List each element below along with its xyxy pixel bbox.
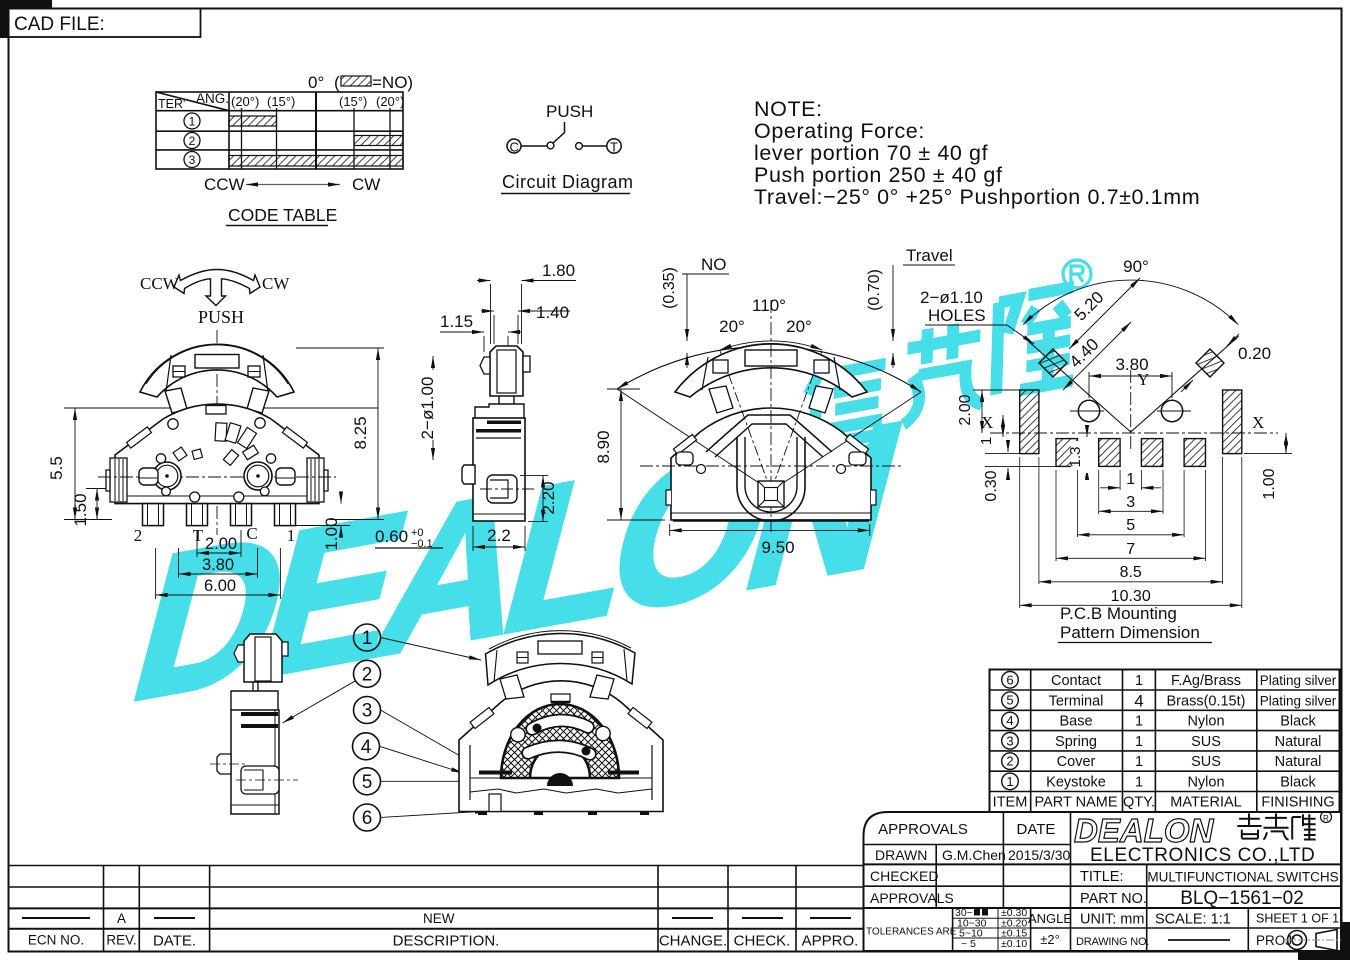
svg-text:2−ø1.00: 2−ø1.00 <box>418 377 437 440</box>
svg-text:1.3: 1.3 <box>1067 447 1084 468</box>
svg-text:Pattern Dimension: Pattern Dimension <box>1060 623 1200 642</box>
svg-text:1: 1 <box>1135 673 1143 689</box>
svg-text:1: 1 <box>287 526 296 545</box>
svg-text:Nylon: Nylon <box>1187 775 1224 791</box>
svg-text:Black: Black <box>1280 714 1316 730</box>
svg-text:P.C.B Mounting: P.C.B Mounting <box>1060 604 1177 623</box>
svg-text:Nylon: Nylon <box>1187 714 1224 730</box>
svg-text:ELECTRONICS CO.,LTD: ELECTRONICS CO.,LTD <box>1090 845 1315 866</box>
svg-text:8.5: 8.5 <box>1120 564 1142 581</box>
svg-text:PUSH: PUSH <box>198 307 244 327</box>
svg-text:Circuit Diagram: Circuit Diagram <box>502 172 634 192</box>
svg-text:4: 4 <box>1134 691 1143 710</box>
svg-text:CHECK.: CHECK. <box>734 933 791 950</box>
svg-text:1: 1 <box>978 437 995 445</box>
svg-text:SUS: SUS <box>1191 754 1221 770</box>
svg-text:T: T <box>193 526 204 545</box>
svg-text:1.40: 1.40 <box>536 303 569 322</box>
svg-text:BLQ−1561−02: BLQ−1561−02 <box>1180 888 1304 909</box>
svg-text:2.00: 2.00 <box>957 394 974 425</box>
svg-text:8.90: 8.90 <box>594 430 613 463</box>
svg-text:2: 2 <box>134 526 143 545</box>
svg-text:2: 2 <box>362 664 373 685</box>
svg-text:Plating silver: Plating silver <box>1260 673 1337 688</box>
svg-text:CODE TABLE: CODE TABLE <box>228 205 337 225</box>
svg-text:±2°: ±2° <box>1040 932 1060 947</box>
svg-text:Black: Black <box>1280 775 1316 791</box>
svg-text:2015/3/30: 2015/3/30 <box>1008 847 1070 863</box>
svg-text:(0.35): (0.35) <box>661 267 678 309</box>
svg-text:DRAWN: DRAWN <box>875 847 927 863</box>
svg-text:3.80: 3.80 <box>202 556 234 574</box>
svg-text:1.80: 1.80 <box>542 261 575 280</box>
svg-text:1.00: 1.00 <box>1261 468 1278 499</box>
svg-text:2.20: 2.20 <box>539 481 558 514</box>
svg-text:3: 3 <box>189 153 196 167</box>
svg-text:110°: 110° <box>752 296 786 315</box>
svg-text:CAD FILE:: CAD FILE: <box>14 14 105 35</box>
svg-text:TITLE:: TITLE: <box>1080 869 1124 885</box>
svg-text:10.30: 10.30 <box>1111 588 1151 605</box>
svg-text:Keystoke: Keystoke <box>1046 775 1106 791</box>
svg-text:20°: 20° <box>719 317 745 336</box>
svg-text:1.00: 1.00 <box>322 517 341 550</box>
svg-text:2.00: 2.00 <box>205 535 237 553</box>
svg-text:(20°): (20°) <box>376 94 404 109</box>
svg-text:ANG.: ANG. <box>196 91 229 106</box>
svg-text:Terminal: Terminal <box>1049 693 1104 709</box>
svg-text:5: 5 <box>1006 693 1013 708</box>
svg-text:9.50: 9.50 <box>761 538 794 557</box>
svg-text:TOLERANCES ARE: TOLERANCES ARE <box>866 927 957 938</box>
svg-text:lever portion 70 ± 40 gf: lever portion 70 ± 40 gf <box>754 141 988 165</box>
svg-text:0.60: 0.60 <box>375 527 408 546</box>
svg-text:X: X <box>1252 413 1264 432</box>
svg-text:Push portion 250 ± 40 gf: Push portion 250 ± 40 gf <box>754 163 1003 187</box>
svg-text:2: 2 <box>189 134 196 148</box>
svg-text:UNIT: mm: UNIT: mm <box>1080 912 1144 928</box>
svg-text:20°: 20° <box>786 317 812 336</box>
svg-text:1: 1 <box>1135 754 1143 770</box>
svg-text:REV.: REV. <box>106 933 136 948</box>
svg-text:APPROVALS: APPROVALS <box>878 821 968 838</box>
svg-text:CCW: CCW <box>140 274 180 293</box>
svg-text:SCALE: 1:1: SCALE: 1:1 <box>1155 912 1231 928</box>
svg-text:PUSH: PUSH <box>546 102 593 121</box>
svg-text:MATERIAL: MATERIAL <box>1170 795 1241 811</box>
svg-text:APPRO.: APPRO. <box>802 933 859 950</box>
svg-text:Travel: Travel <box>906 246 953 265</box>
svg-text:DATE: DATE <box>1017 821 1056 838</box>
svg-text:3: 3 <box>1006 733 1013 748</box>
svg-text:FINISHING: FINISHING <box>1261 795 1334 811</box>
svg-text:6: 6 <box>1006 672 1013 687</box>
svg-text:1: 1 <box>189 115 196 129</box>
svg-text:1.50: 1.50 <box>71 493 90 526</box>
svg-text:1: 1 <box>1006 774 1013 789</box>
svg-text:X: X <box>981 413 993 432</box>
svg-text:4: 4 <box>361 737 372 758</box>
svg-text:3: 3 <box>1126 494 1135 511</box>
svg-text:CHECKED: CHECKED <box>870 868 938 884</box>
svg-text:=NO): =NO) <box>372 73 413 92</box>
svg-text:Natural: Natural <box>1275 754 1322 770</box>
svg-text:A: A <box>117 911 126 926</box>
svg-text:G.M.Chen: G.M.Chen <box>942 847 1006 863</box>
svg-text:2−ø1.10: 2−ø1.10 <box>920 288 983 307</box>
svg-text:4: 4 <box>1006 713 1013 728</box>
svg-text:Spring: Spring <box>1055 734 1097 750</box>
svg-text:2: 2 <box>1006 754 1013 769</box>
svg-text:0°: 0° <box>308 73 324 92</box>
svg-text:C: C <box>510 140 519 155</box>
svg-text:ITEM: ITEM <box>993 795 1028 811</box>
svg-text:90°: 90° <box>1123 257 1149 276</box>
svg-text:Brass(0.15t): Brass(0.15t) <box>1167 693 1246 709</box>
svg-text:1: 1 <box>1135 775 1143 791</box>
svg-text:(15°): (15°) <box>267 94 295 109</box>
svg-text:DATE.: DATE. <box>153 933 196 950</box>
svg-text:1: 1 <box>1126 471 1135 488</box>
svg-text:QTY.: QTY. <box>1123 795 1155 811</box>
svg-text:1.15: 1.15 <box>440 312 473 331</box>
svg-text:(15°): (15°) <box>339 94 367 109</box>
svg-text:6: 6 <box>362 808 373 829</box>
svg-text:DEALON: DEALON <box>1074 812 1215 849</box>
svg-text:C: C <box>246 524 257 543</box>
svg-text:CW: CW <box>352 175 380 194</box>
svg-text:R: R <box>1323 814 1329 823</box>
svg-text:1: 1 <box>1135 714 1143 730</box>
svg-text:1: 1 <box>362 628 373 649</box>
svg-text:NOTE:: NOTE: <box>754 97 823 121</box>
svg-text:Plating silver: Plating silver <box>1260 693 1337 708</box>
svg-text:Contact: Contact <box>1051 673 1101 689</box>
svg-text:APPROVALS: APPROVALS <box>870 890 954 906</box>
svg-text:Operating Force:: Operating Force: <box>754 119 925 143</box>
svg-text:ECN NO.: ECN NO. <box>28 933 84 948</box>
svg-text:ANGLE: ANGLE <box>1028 911 1072 926</box>
svg-text:TER': TER' <box>158 97 185 111</box>
svg-text:F.Ag/Brass: F.Ag/Brass <box>1171 673 1241 689</box>
svg-text:5.5: 5.5 <box>47 456 66 480</box>
svg-text:5: 5 <box>362 772 373 793</box>
svg-text:NO: NO <box>701 255 727 274</box>
svg-text:Travel:−25° 0° +25° Pushpor: Travel:−25° 0° +25° Pushportion 0.7±0.1m… <box>754 185 1200 209</box>
svg-text:CCW: CCW <box>204 175 245 194</box>
svg-text:PART NAME: PART NAME <box>1035 795 1118 811</box>
svg-text:PART NO.: PART NO. <box>1080 891 1147 907</box>
svg-text:HOLES: HOLES <box>928 306 986 325</box>
svg-text:NEW: NEW <box>423 911 455 926</box>
svg-text:CW: CW <box>262 274 290 293</box>
svg-text:SHEET 1 OF 1: SHEET 1 OF 1 <box>1256 912 1339 926</box>
svg-text:±0.10: ±0.10 <box>1001 938 1027 950</box>
svg-text:6.00: 6.00 <box>204 577 236 595</box>
svg-text:0.20: 0.20 <box>1238 344 1271 363</box>
svg-text:5: 5 <box>1126 517 1135 534</box>
svg-text:Y: Y <box>1137 370 1149 389</box>
svg-text:1: 1 <box>1135 734 1143 750</box>
svg-text:2.2: 2.2 <box>487 526 511 545</box>
svg-text:DRAWING NO.: DRAWING NO. <box>1076 936 1149 948</box>
svg-text:3: 3 <box>362 701 373 722</box>
svg-text:(0.70): (0.70) <box>866 269 883 311</box>
svg-text:(20°): (20°) <box>231 94 259 109</box>
svg-text:CHANGE.: CHANGE. <box>659 933 727 950</box>
svg-text:T: T <box>610 140 618 155</box>
svg-text:SUS: SUS <box>1191 734 1221 750</box>
svg-text:0.30: 0.30 <box>983 470 1000 501</box>
svg-text:DESCRIPTION.: DESCRIPTION. <box>393 933 500 950</box>
svg-text:Natural: Natural <box>1275 734 1322 750</box>
svg-text:(: ( <box>334 73 340 92</box>
svg-text:MULTIFUNCTIONAL SWITCHS: MULTIFUNCTIONAL SWITCHS <box>1147 870 1338 885</box>
svg-text:7: 7 <box>1126 541 1135 558</box>
svg-text:~ 5: ~ 5 <box>961 938 976 950</box>
svg-text:8.25: 8.25 <box>351 416 370 449</box>
svg-text:Base: Base <box>1059 714 1092 730</box>
svg-text:Cover: Cover <box>1057 754 1096 770</box>
